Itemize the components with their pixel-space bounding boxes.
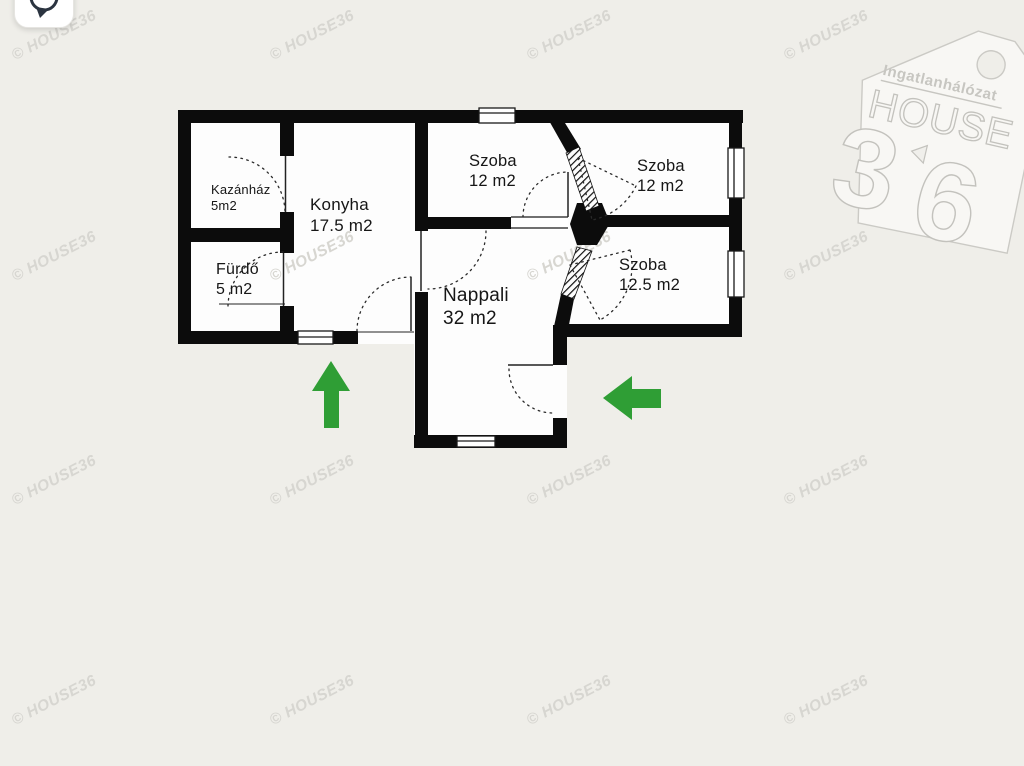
room-area: 12.5 m2 — [619, 275, 680, 295]
up-arrow-icon — [312, 361, 350, 428]
room-name: Szoba — [619, 255, 680, 275]
room-area: 5 m2 — [216, 280, 259, 300]
room-area: 12 m2 — [637, 176, 685, 196]
room-name: Kazánház — [211, 182, 270, 198]
watermark-text: © HOUSE36 — [267, 7, 357, 64]
room-label-konyha: Konyha 17.5 m2 — [310, 195, 373, 236]
left-arrow-icon — [603, 376, 661, 420]
room-label-szoba-top-right: Szoba 12 m2 — [637, 156, 685, 196]
room-label-nappali: Nappali 32 m2 — [443, 284, 509, 330]
watermark-text: © HOUSE36 — [781, 672, 871, 729]
watermark-text: © HOUSE36 — [524, 7, 614, 64]
room-label-furdo: Fürdő 5 m2 — [216, 260, 259, 299]
watermark-text: © HOUSE36 — [524, 672, 614, 729]
watermark-text: © HOUSE36 — [9, 672, 99, 729]
watermark-text: © HOUSE36 — [9, 452, 99, 509]
room-area: 32 m2 — [443, 307, 509, 330]
watermark-text: © HOUSE36 — [9, 228, 99, 285]
watermark-text: © HOUSE36 — [524, 452, 614, 509]
room-label-kazanhaz: Kazánház 5m2 — [211, 182, 270, 214]
rotate-button[interactable] — [14, 0, 74, 28]
room-name: Szoba — [637, 156, 685, 176]
room-area: 5m2 — [211, 198, 270, 214]
room-area: 12 m2 — [469, 171, 517, 191]
room-area: 17.5 m2 — [310, 216, 373, 237]
watermark-text: © HOUSE36 — [267, 672, 357, 729]
room-label-szoba-right: Szoba 12.5 m2 — [619, 255, 680, 295]
watermark-text: © HOUSE36 — [267, 452, 357, 509]
room-name: Szoba — [469, 151, 517, 171]
rotate-icon — [15, 0, 73, 27]
room-name: Konyha — [310, 195, 373, 216]
room-label-szoba-top-left: Szoba 12 m2 — [469, 151, 517, 191]
watermark-text: © HOUSE36 — [781, 452, 871, 509]
room-name: Nappali — [443, 284, 509, 307]
house36-logo: Ingatlanhálózat HOUSE 3 6 — [846, 8, 1024, 258]
floorplan-page: { "canvas": { "background_color": "#efee… — [0, 0, 1024, 766]
room-name: Fürdő — [216, 260, 259, 280]
